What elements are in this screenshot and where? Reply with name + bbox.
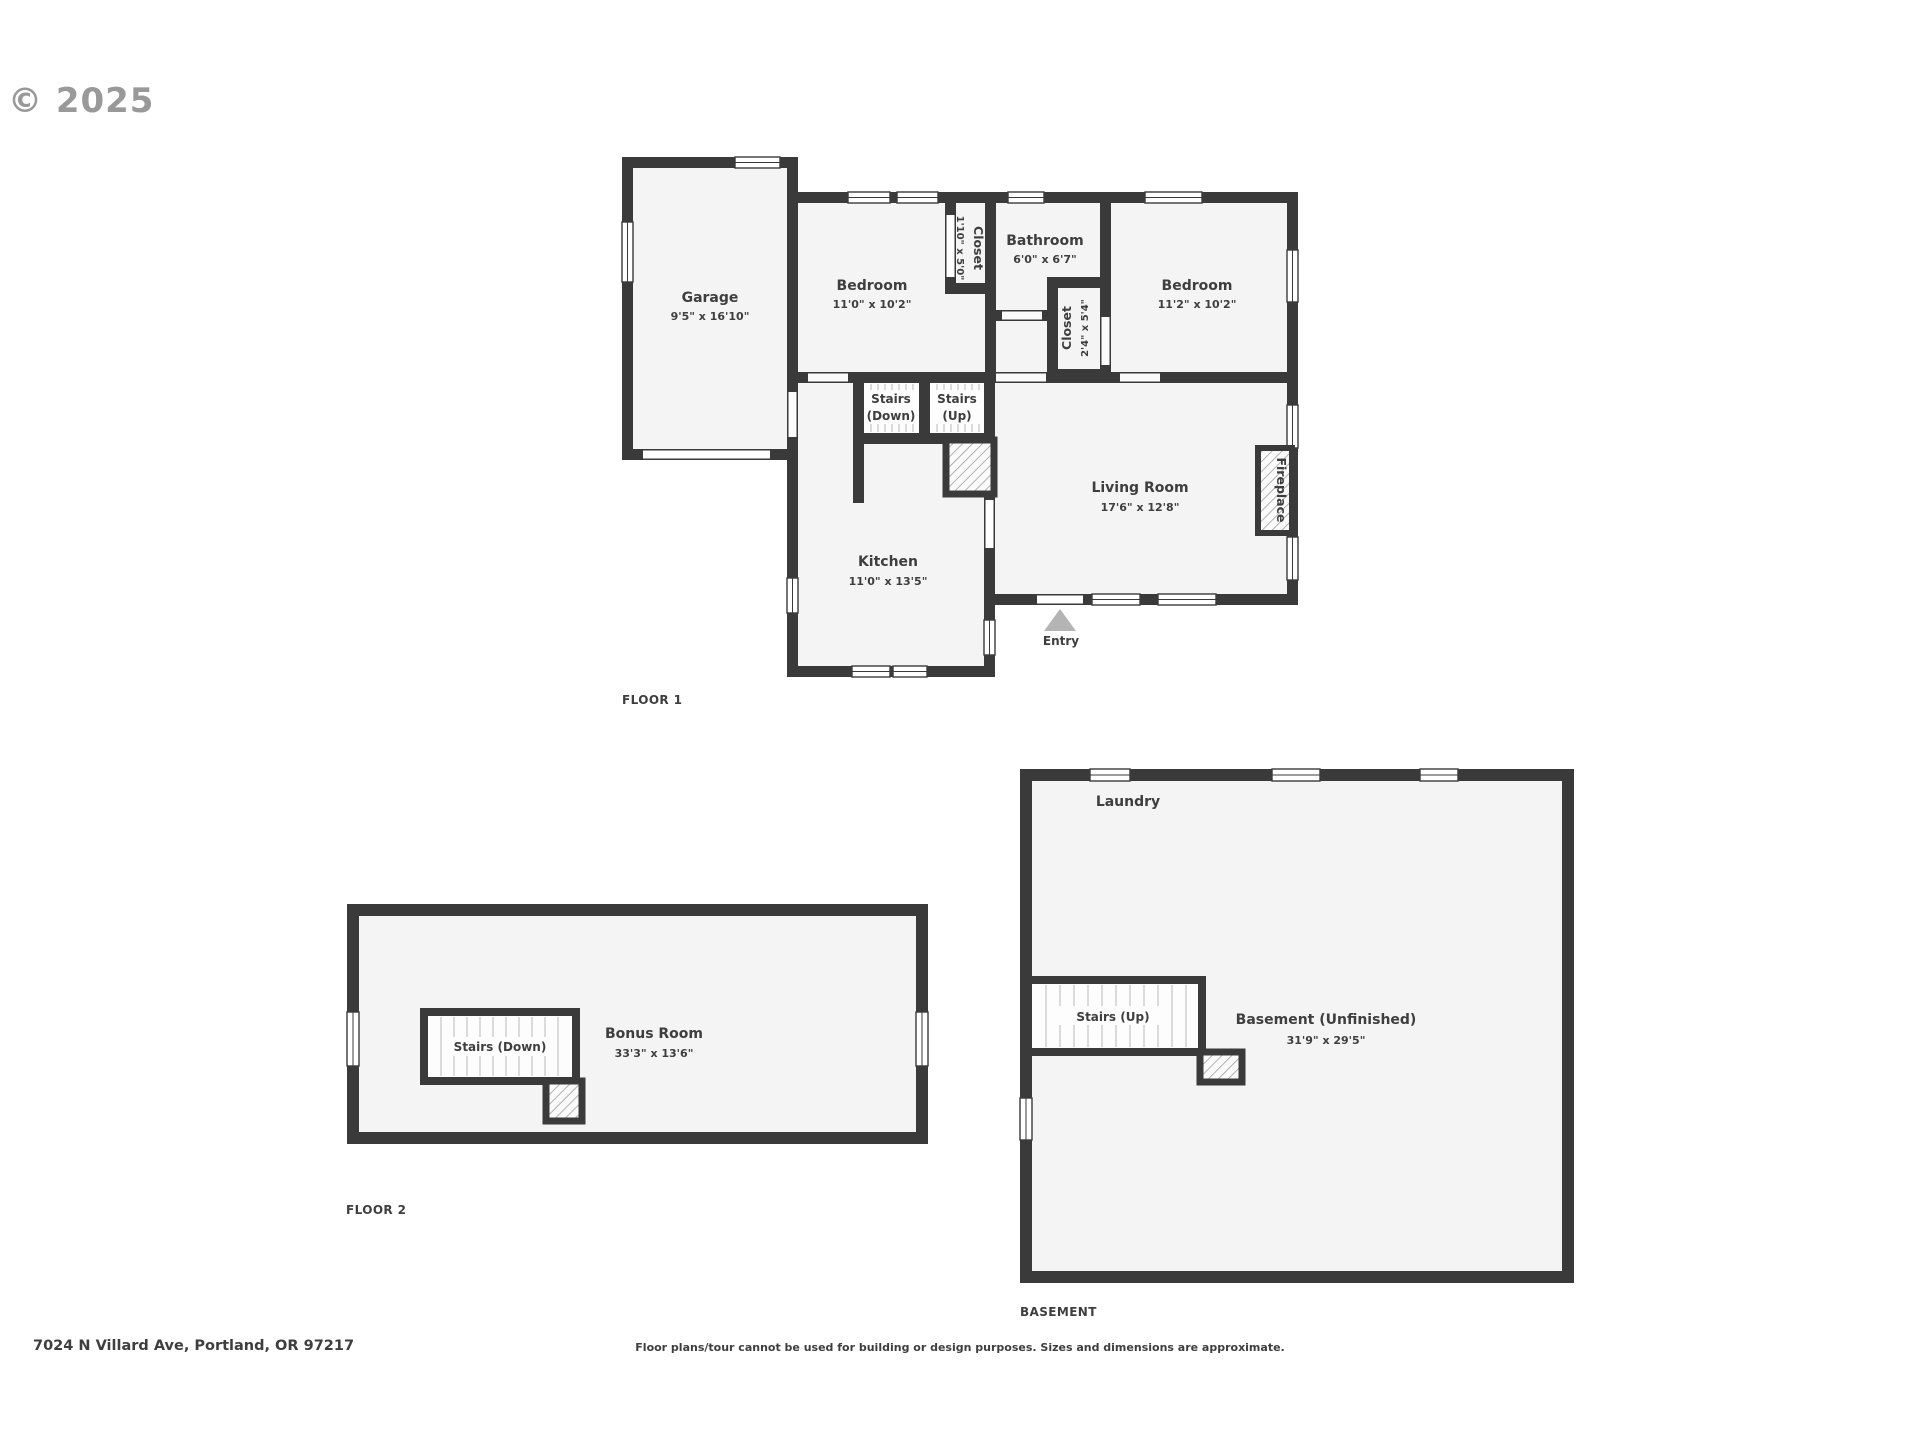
window-icon bbox=[1287, 405, 1298, 448]
window-icon bbox=[1420, 769, 1458, 781]
basement-caption: BASEMENT bbox=[1020, 1305, 1097, 1319]
copyright-watermark: © 2025 bbox=[8, 81, 154, 121]
window-icon bbox=[347, 1012, 359, 1066]
footer: 7024 N Villard Ave, Portland, OR 97217 F… bbox=[33, 1338, 1285, 1354]
stairs-up-label: Stairs bbox=[937, 392, 977, 406]
window-icon bbox=[787, 578, 798, 613]
window-icon bbox=[1145, 192, 1202, 203]
window-icon bbox=[1287, 537, 1298, 580]
window-icon bbox=[1020, 1098, 1032, 1140]
closet2-label: Closet bbox=[1059, 306, 1074, 350]
closet1-dims: 1'10" x 5'0" bbox=[954, 216, 965, 281]
window-icon bbox=[622, 222, 633, 282]
floorplan-page: © 2025 bbox=[0, 0, 1920, 1440]
basement-plan: Stairs (Up) Laundry Basement (Unfinished… bbox=[1020, 769, 1574, 1319]
window-icon bbox=[984, 620, 995, 655]
floor1-stairs-up: Stairs (Up) bbox=[930, 383, 984, 433]
bedroom1-label: Bedroom bbox=[837, 278, 908, 294]
bedroom2-dims: 11'2" x 10'2" bbox=[1158, 298, 1237, 311]
stairs-up-label: (Up) bbox=[942, 409, 971, 423]
entry-label: Entry bbox=[1043, 634, 1079, 648]
window-icon bbox=[916, 1012, 928, 1066]
window-icon bbox=[1090, 769, 1130, 781]
closet2-dims: 2'4" x 5'4" bbox=[1080, 299, 1091, 357]
floor2-stairs-label: Stairs (Down) bbox=[454, 1040, 547, 1054]
fireplace: Fireplace bbox=[1258, 448, 1292, 533]
window-icon bbox=[1158, 594, 1216, 605]
basement-stairs-label: Stairs (Up) bbox=[1076, 1010, 1149, 1024]
bathroom-dims: 6'0" x 6'7" bbox=[1013, 253, 1077, 266]
closet1-label: Closet bbox=[971, 226, 986, 270]
bedroom2-label: Bedroom bbox=[1162, 278, 1233, 294]
bathroom-label: Bathroom bbox=[1006, 233, 1084, 249]
bonus-room-label: Bonus Room bbox=[605, 1026, 703, 1042]
stairs-down-label: Stairs bbox=[871, 392, 911, 406]
floor2-caption: FLOOR 2 bbox=[346, 1203, 406, 1217]
stair-void-hatch bbox=[1200, 1052, 1242, 1082]
window-icon bbox=[1092, 594, 1140, 605]
garage-label: Garage bbox=[682, 290, 739, 306]
floor2-plan: Stairs (Down) Bonus Room 33'3" x 13'6" F… bbox=[346, 904, 928, 1217]
kitchen-dims: 11'0" x 13'5" bbox=[849, 575, 928, 588]
kitchen-label: Kitchen bbox=[858, 554, 918, 570]
bonus-room-dims: 33'3" x 13'6" bbox=[615, 1047, 694, 1060]
stairs-down-label: (Down) bbox=[867, 409, 916, 423]
floorplan-canvas: © 2025 bbox=[0, 0, 1920, 1440]
laundry-label: Laundry bbox=[1096, 794, 1160, 810]
window-icon bbox=[1287, 250, 1298, 302]
garage-dims: 9'5" x 16'10" bbox=[671, 310, 750, 323]
window-icon bbox=[848, 192, 890, 203]
stair-void-hatch bbox=[546, 1081, 582, 1121]
bedroom1-dims: 11'0" x 10'2" bbox=[833, 298, 912, 311]
stair-void-hatch bbox=[946, 440, 994, 494]
window-icon bbox=[735, 157, 780, 168]
window-icon bbox=[1272, 769, 1320, 781]
living-room-dims: 17'6" x 12'8" bbox=[1101, 501, 1180, 514]
disclaimer-text: Floor plans/tour cannot be used for buil… bbox=[635, 1341, 1284, 1354]
property-address: 7024 N Villard Ave, Portland, OR 97217 bbox=[33, 1338, 354, 1354]
living-room-label: Living Room bbox=[1091, 480, 1188, 496]
floor1-caption: FLOOR 1 bbox=[622, 693, 682, 707]
window-icon bbox=[893, 666, 927, 677]
window-icon bbox=[852, 666, 890, 677]
floor1-plan: Stairs (Down) Stairs (Up) Fireplace Gara… bbox=[622, 157, 1298, 707]
window-icon bbox=[1008, 192, 1044, 203]
basement-room-label: Basement (Unfinished) bbox=[1236, 1012, 1417, 1028]
window-icon bbox=[897, 192, 938, 203]
basement-room-dims: 31'9" x 29'5" bbox=[1287, 1034, 1366, 1047]
entry-arrow-icon bbox=[1044, 609, 1076, 631]
floor1-stairs-down: Stairs (Down) bbox=[864, 383, 919, 433]
fireplace-label: Fireplace bbox=[1274, 457, 1289, 522]
